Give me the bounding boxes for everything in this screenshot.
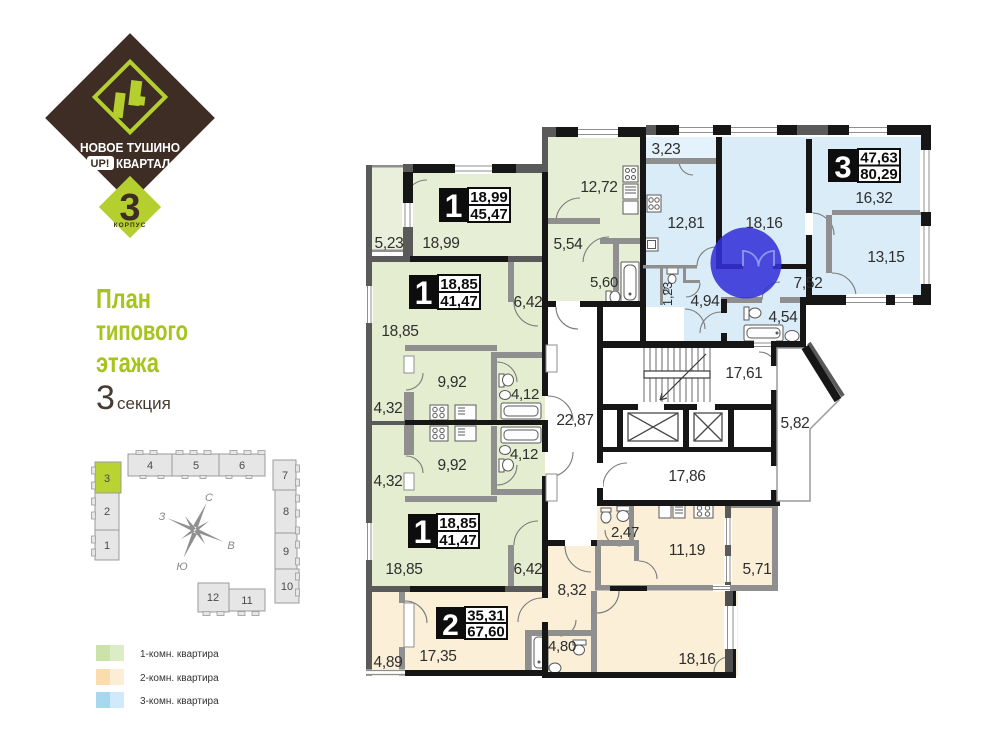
svg-text:КВАРТАЛ: КВАРТАЛ	[116, 156, 170, 171]
svg-text:План: План	[96, 283, 151, 314]
svg-text:5: 5	[193, 460, 199, 472]
svg-text:45,47: 45,47	[470, 206, 508, 223]
svg-text:18,85: 18,85	[385, 561, 422, 578]
svg-text:С: С	[205, 492, 213, 504]
svg-text:47,63: 47,63	[860, 150, 898, 167]
svg-text:1: 1	[445, 188, 463, 224]
svg-text:12,72: 12,72	[580, 179, 617, 196]
svg-text:В: В	[227, 540, 234, 552]
svg-text:3: 3	[104, 473, 110, 485]
svg-text:З: З	[159, 511, 166, 523]
svg-text:КОРПУС: КОРПУС	[114, 222, 147, 229]
svg-text:2: 2	[442, 609, 459, 642]
svg-text:41,47: 41,47	[440, 293, 478, 310]
svg-text:этажа: этажа	[96, 347, 159, 378]
svg-text:13,15: 13,15	[867, 249, 904, 266]
svg-text:1: 1	[415, 275, 433, 311]
svg-text:18,85: 18,85	[440, 276, 478, 293]
svg-text:5,60: 5,60	[590, 274, 618, 291]
svg-text:41,47: 41,47	[439, 532, 477, 549]
svg-text:11: 11	[241, 595, 252, 607]
svg-text:17,86: 17,86	[668, 468, 705, 485]
svg-text:4,80: 4,80	[548, 638, 576, 655]
svg-text:9,92: 9,92	[438, 457, 467, 474]
svg-text:35,31: 35,31	[467, 608, 505, 625]
svg-text:4,89: 4,89	[374, 654, 403, 671]
svg-text:4,12: 4,12	[511, 386, 539, 403]
svg-text:7,52: 7,52	[794, 275, 823, 292]
svg-text:5,54: 5,54	[554, 236, 584, 253]
svg-text:3: 3	[96, 379, 115, 417]
svg-text:Ю: Ю	[176, 561, 187, 573]
svg-text:1: 1	[414, 514, 432, 550]
svg-text:6,42: 6,42	[514, 294, 543, 311]
svg-text:18,85: 18,85	[381, 323, 418, 340]
svg-text:3-комн. квартира: 3-комн. квартира	[140, 696, 219, 707]
svg-text:6: 6	[239, 460, 245, 472]
svg-text:8: 8	[283, 506, 289, 518]
svg-text:4,32: 4,32	[374, 400, 403, 417]
svg-text:18,99: 18,99	[422, 235, 459, 252]
svg-text:5,71: 5,71	[743, 561, 772, 578]
svg-text:UP!: UP!	[91, 158, 110, 170]
svg-text:5,23: 5,23	[375, 235, 404, 252]
svg-text:секция: секция	[117, 394, 171, 413]
svg-text:1-комн. квартира: 1-комн. квартира	[140, 649, 219, 660]
svg-text:4: 4	[147, 460, 153, 472]
svg-text:12: 12	[207, 592, 219, 604]
svg-text:10: 10	[281, 581, 293, 593]
svg-text:22,87: 22,87	[556, 412, 593, 429]
svg-text:17,61: 17,61	[725, 365, 762, 382]
svg-text:2,47: 2,47	[611, 524, 639, 541]
svg-text:1,23: 1,23	[660, 282, 675, 306]
svg-text:3: 3	[834, 150, 851, 185]
svg-text:2-комн. квартира: 2-комн. квартира	[140, 673, 219, 684]
svg-text:17,35: 17,35	[419, 648, 456, 665]
svg-text:18,85: 18,85	[439, 515, 477, 532]
svg-text:4,32: 4,32	[374, 473, 403, 490]
svg-text:9,92: 9,92	[438, 374, 467, 391]
svg-text:80,29: 80,29	[860, 166, 898, 183]
svg-text:18,99: 18,99	[470, 189, 508, 206]
svg-text:67,60: 67,60	[467, 624, 505, 641]
svg-text:4,12: 4,12	[510, 446, 538, 463]
svg-text:7: 7	[282, 470, 288, 482]
svg-text:типового: типового	[96, 315, 188, 346]
svg-text:НОВОЕ ТУШИНО: НОВОЕ ТУШИНО	[80, 140, 180, 155]
svg-text:16,32: 16,32	[855, 190, 892, 207]
svg-text:4,54: 4,54	[769, 309, 799, 326]
svg-text:3,23: 3,23	[652, 141, 681, 158]
svg-text:18,16: 18,16	[678, 651, 715, 668]
svg-text:8,32: 8,32	[558, 582, 587, 599]
svg-text:12,81: 12,81	[667, 215, 704, 232]
svg-text:11,19: 11,19	[669, 542, 705, 559]
svg-text:2: 2	[104, 506, 110, 518]
svg-text:1: 1	[104, 540, 110, 552]
svg-text:6,42: 6,42	[514, 561, 543, 578]
svg-text:5,82: 5,82	[781, 415, 810, 432]
svg-text:9: 9	[283, 546, 289, 558]
svg-text:4,94: 4,94	[691, 293, 721, 310]
